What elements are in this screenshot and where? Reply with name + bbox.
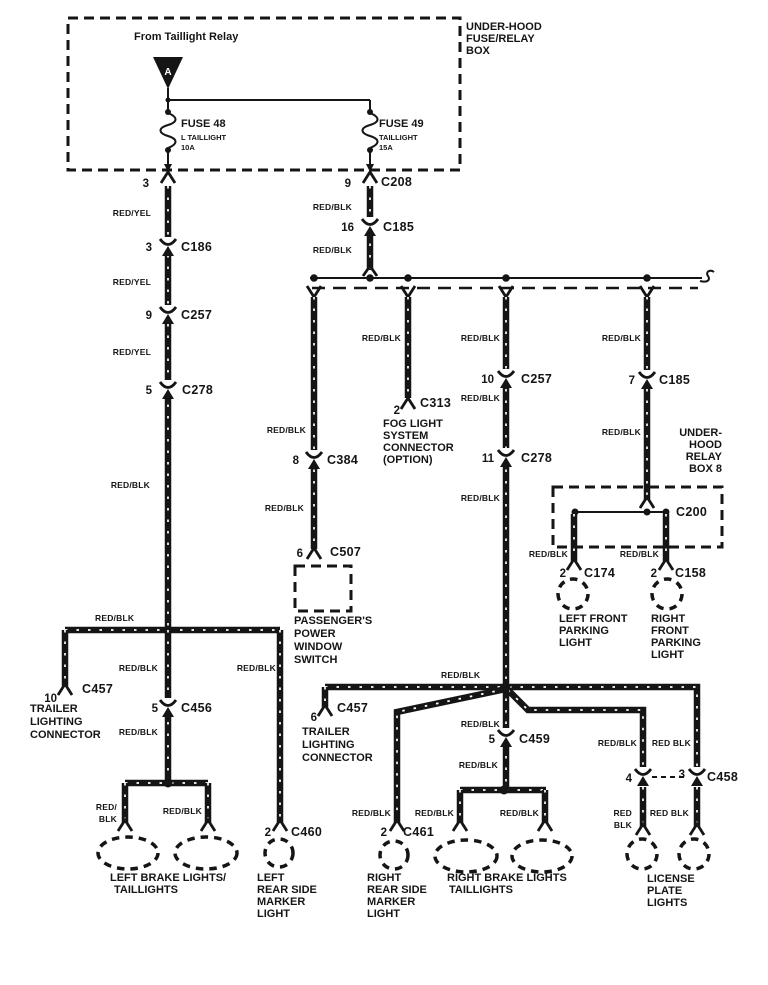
pin-number: 11 — [482, 453, 495, 465]
pin-number: 2 — [651, 568, 657, 580]
pin-number: 8 — [293, 455, 300, 467]
fuse48-name: FUSE 48 — [181, 118, 226, 130]
component-label: PARKING — [651, 637, 701, 649]
component-label: LIGHT — [257, 908, 290, 920]
connector-c278: C278 — [182, 383, 213, 397]
connector-c186: C186 — [181, 240, 212, 254]
pin-number: 5 — [146, 385, 153, 397]
bus-tap-dot — [404, 274, 412, 282]
component-label: FOG LIGHT — [383, 418, 443, 430]
wire-color-label: RED/BLK — [313, 202, 353, 212]
wire-color-label: RED BLK — [652, 738, 692, 748]
component-label: PASSENGER'S — [294, 615, 372, 627]
wire-color-label: BLK — [99, 814, 118, 824]
pin-number: 6 — [297, 548, 303, 560]
component-label: WINDOW — [294, 641, 343, 653]
wire-color-label: RED/YEL — [113, 347, 151, 357]
component-label: FRONT — [651, 625, 689, 637]
component-label: CONNECTOR — [383, 442, 454, 454]
wire-color-label: RED/BLK — [461, 719, 501, 729]
fuse49-amp: 15A — [379, 143, 393, 152]
fuse49-name: FUSE 49 — [379, 118, 424, 130]
wire-color-label: RED/BLK — [95, 613, 135, 623]
bus-tap-dot — [310, 274, 318, 282]
connector-c457: C457 — [337, 701, 368, 715]
connector-c461: C461 — [403, 825, 434, 839]
wire-color-label: RED/BLK — [119, 663, 159, 673]
connector-c507: C507 — [330, 545, 361, 559]
component-label: RELAY — [686, 451, 723, 463]
connector-c185: C185 — [659, 373, 690, 387]
pin-number: 5 — [489, 734, 496, 746]
junction-dot — [500, 786, 509, 795]
wire-color-label: RED/BLK — [163, 806, 203, 816]
component-label: TAILLIGHTS — [449, 884, 513, 896]
wire-color-label: BLK — [614, 820, 633, 830]
wire-color-label: RED/BLK — [461, 393, 501, 403]
source-label: From Taillight Relay — [134, 31, 239, 43]
wire-color-label: RED BLK — [650, 808, 690, 818]
wiring-diagram: UNDER-HOOD FUSE/RELAY BOX From Taillight… — [0, 0, 768, 985]
component-label: MARKER — [257, 896, 305, 908]
fuse-box-title: BOX — [466, 45, 491, 57]
component-label: (OPTION) — [383, 454, 433, 466]
component-label: TRAILER — [302, 726, 350, 738]
connector-c185: C185 — [383, 220, 414, 234]
wire-color-label: RED/BLK — [500, 808, 540, 818]
component-label: POWER — [294, 628, 336, 640]
wire-color-label: RED/BLK — [598, 738, 638, 748]
connector-c208: C208 — [381, 175, 412, 189]
wire-color-label: RED — [613, 808, 632, 818]
component-label: LIGHTING — [30, 716, 83, 728]
component-label: LEFT — [257, 872, 285, 884]
connector-c257: C257 — [521, 372, 552, 386]
wire-color-label: RED/BLK — [461, 493, 501, 503]
component-label: CONNECTOR — [302, 752, 373, 764]
pin-number: 4 — [626, 773, 633, 785]
bus-tap-dot — [502, 274, 510, 282]
connector-c278: C278 — [521, 451, 552, 465]
wire-color-label: RED/BLK — [441, 670, 481, 680]
fuse49-desc: TAILLIGHT — [379, 133, 418, 142]
component-label: MARKER — [367, 896, 415, 908]
component-label: CONNECTOR — [30, 729, 101, 741]
connector-c457: C457 — [82, 682, 113, 696]
pin-number: 2 — [394, 405, 400, 417]
wire-color-label: RED/BLK — [461, 333, 501, 343]
wire-color-label: RED/BLK — [529, 549, 569, 559]
wire-color-label: RED/BLK — [267, 425, 307, 435]
connector-c313: C313 — [420, 396, 451, 410]
wire-color-label: RED/BLK — [620, 549, 660, 559]
pin-number: 16 — [341, 222, 354, 234]
pin-number: 10 — [481, 374, 494, 386]
fuse48-desc: L TAILLIGHT — [181, 133, 227, 142]
component-label: LIGHT — [651, 649, 684, 661]
component-label: TAILLIGHTS — [114, 884, 178, 896]
wire-color-label: RED/BLK — [265, 503, 305, 513]
fuse-box-title: FUSE/RELAY — [466, 33, 535, 45]
fuse49-pin: 9 — [345, 178, 351, 190]
connector-c257: C257 — [181, 308, 212, 322]
bus-tap-dot — [366, 274, 374, 282]
wire-color-label: RED/BLK — [237, 663, 277, 673]
pin-number: 2 — [381, 827, 387, 839]
connector-c174: C174 — [584, 566, 615, 580]
component-label: RIGHT — [367, 872, 402, 884]
fuse48-pin: 3 — [143, 178, 149, 190]
bus-tap-dot — [643, 274, 651, 282]
wire-color-label: RED/BLK — [352, 808, 392, 818]
pin-number: 2 — [560, 568, 566, 580]
wire-color-label: RED/BLK — [111, 480, 151, 490]
component-label: RIGHT BRAKE LIGHTS — [447, 872, 567, 884]
connector-c458: C458 — [707, 770, 738, 784]
wire-color-label: RED/BLK — [602, 333, 642, 343]
wire-color-label: RED/BLK — [119, 727, 159, 737]
component-label: SWITCH — [294, 654, 337, 666]
pin-number: 6 — [311, 712, 317, 724]
component-label: PARKING — [559, 625, 609, 637]
wire-color-label: RED/BLK — [415, 808, 455, 818]
component-label: REAR SIDE — [257, 884, 317, 896]
wire-color-label: RED/BLK — [459, 760, 499, 770]
pin-number: 5 — [152, 703, 159, 715]
splice-dot — [644, 509, 651, 516]
component-label: UNDER- — [679, 427, 722, 439]
connector-c459: C459 — [519, 732, 550, 746]
connector-c384: C384 — [327, 453, 358, 467]
component-label: REAR SIDE — [367, 884, 427, 896]
connector-c460: C460 — [291, 825, 322, 839]
component-label: LIGHT — [559, 637, 592, 649]
component-label: TRAILER — [30, 703, 78, 715]
component-label: SYSTEM — [383, 430, 428, 442]
connector-c200: C200 — [676, 505, 707, 519]
component-label: LEFT FRONT — [559, 613, 628, 625]
connector-c158: C158 — [675, 566, 706, 580]
component-label: LEFT BRAKE LIGHTS/ — [110, 872, 226, 884]
junction-dot — [166, 98, 171, 103]
component-label: PLATE — [647, 885, 682, 897]
component-label: RIGHT — [651, 613, 686, 625]
wire-color-label: RED/YEL — [113, 277, 151, 287]
wire-color-label: RED/BLK — [602, 427, 642, 437]
component-label: LICENSE — [647, 873, 695, 885]
wiring-diagram-page: UNDER-HOOD FUSE/RELAY BOX From Taillight… — [0, 0, 768, 985]
pin-number: 3 — [679, 769, 685, 781]
fuse48-amp: 10A — [181, 143, 195, 152]
component-label: LIGHTS — [647, 897, 687, 909]
component-label: LIGHTING — [302, 739, 355, 751]
pin-number: 7 — [629, 375, 635, 387]
wire-color-label: RED/BLK — [313, 245, 353, 255]
junction-dot — [502, 683, 511, 692]
pin-number: 3 — [146, 242, 152, 254]
connector-c456: C456 — [181, 701, 212, 715]
component-label: HOOD — [689, 439, 722, 451]
pin-number: 2 — [265, 827, 271, 839]
component-label: BOX 8 — [689, 463, 722, 475]
wire-color-label: RED/BLK — [362, 333, 402, 343]
component-label: LIGHT — [367, 908, 400, 920]
junction-dot — [164, 779, 173, 788]
pin-number: 9 — [146, 310, 152, 322]
wire-color-label: RED/YEL — [113, 208, 151, 218]
wire-color-label: RED/ — [96, 802, 118, 812]
fuse-box-title: UNDER-HOOD — [466, 21, 542, 33]
source-tag: A — [164, 67, 171, 78]
